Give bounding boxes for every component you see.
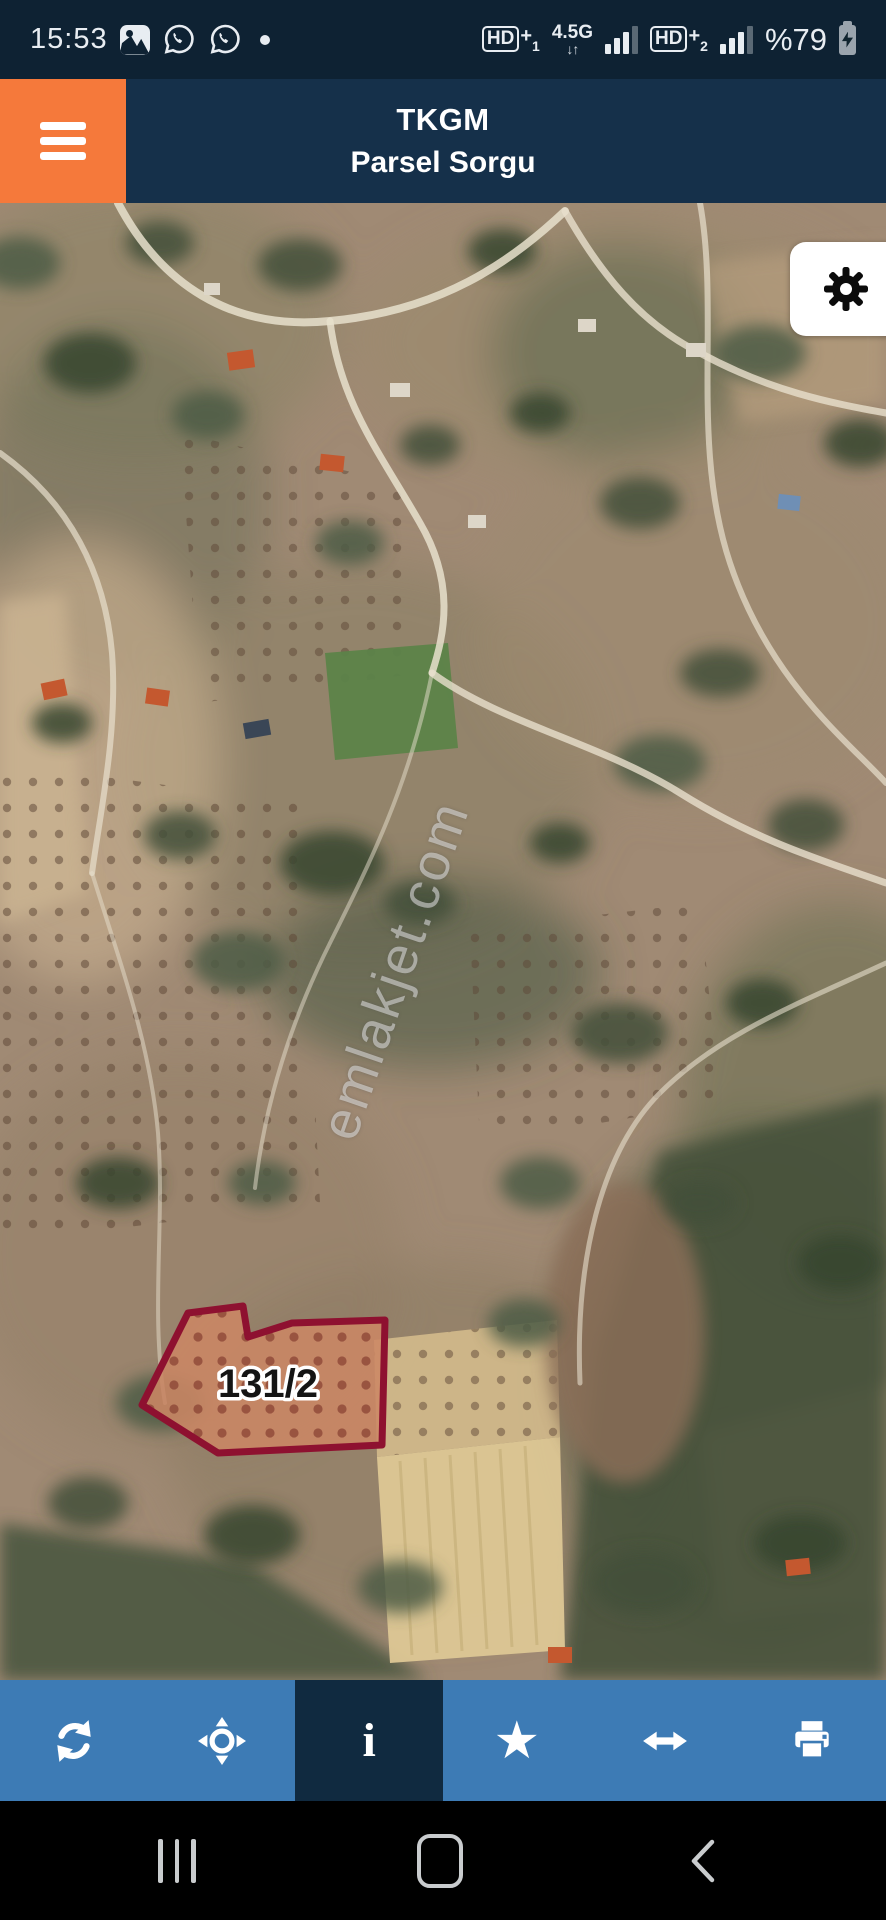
gallery-icon	[120, 25, 150, 55]
signal-bars-icon	[720, 26, 753, 54]
sim2-hd-plus-icon: HD+2	[650, 26, 708, 54]
app-title: TKGM	[396, 102, 489, 138]
battery-percent: %79	[765, 22, 827, 58]
status-bar: 15:53 HD+1 4.5G ↓↑ HD+2 %79	[0, 0, 886, 79]
recents-icon	[158, 1839, 196, 1883]
phone-screen: 15:53 HD+1 4.5G ↓↑ HD+2 %79	[0, 0, 886, 1920]
android-nav-bar	[0, 1801, 886, 1920]
menu-button[interactable]	[0, 79, 126, 203]
signal-bars-icon	[605, 26, 638, 54]
notification-dot-icon	[260, 35, 270, 45]
home-icon	[417, 1834, 463, 1888]
gear-icon	[823, 266, 869, 312]
hamburger-icon	[40, 122, 86, 160]
app-subtitle: Parsel Sorgu	[350, 146, 535, 180]
info-icon: i	[363, 1717, 376, 1765]
status-bar-right: HD+1 4.5G ↓↑ HD+2 %79	[482, 22, 856, 58]
locate-button[interactable]	[148, 1680, 296, 1801]
refresh-button[interactable]	[0, 1680, 148, 1801]
status-bar-left: 15:53	[30, 23, 270, 57]
whatsapp-icon	[162, 23, 196, 57]
print-icon	[788, 1717, 836, 1765]
refresh-icon	[50, 1717, 98, 1765]
print-button[interactable]	[738, 1680, 886, 1801]
measure-arrows-icon	[641, 1717, 689, 1765]
parcel-label: 131/2	[218, 1362, 318, 1406]
favorite-star-icon: ★	[494, 1715, 541, 1767]
measure-button[interactable]	[591, 1680, 739, 1801]
favorite-button[interactable]: ★	[443, 1680, 591, 1801]
app-header: TKGM Parsel Sorgu	[0, 79, 886, 203]
home-button[interactable]	[417, 1834, 463, 1888]
network-type-indicator: 4.5G ↓↑	[552, 23, 593, 56]
map-settings-button[interactable]	[790, 242, 886, 336]
back-icon	[684, 1837, 728, 1885]
recents-button[interactable]	[158, 1839, 196, 1883]
map-toolbar: i ★	[0, 1680, 886, 1801]
map-viewport[interactable]: 131/2 emlakjet.com	[0, 203, 886, 1680]
satellite-terrain: 131/2	[0, 203, 886, 1680]
battery-charging-icon	[839, 25, 856, 55]
clock: 15:53	[30, 23, 108, 56]
whatsapp-icon	[208, 23, 242, 57]
back-button[interactable]	[684, 1837, 728, 1885]
sim1-hd-plus-icon: HD+1	[482, 26, 540, 54]
locate-crosshair-icon	[198, 1717, 246, 1765]
info-button[interactable]: i	[295, 1680, 443, 1801]
